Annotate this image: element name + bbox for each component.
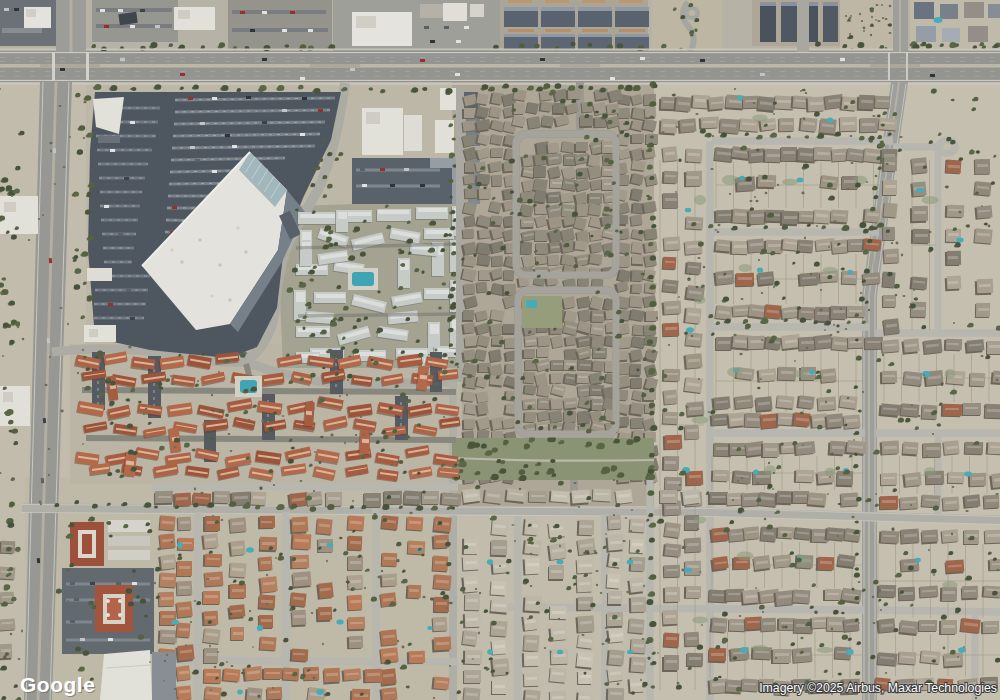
svg-text:Imagery ©2025 Airbus, Maxar Te: Imagery ©2025 Airbus, Maxar Technologies [759, 681, 997, 695]
svg-text:Google: Google [20, 673, 95, 696]
